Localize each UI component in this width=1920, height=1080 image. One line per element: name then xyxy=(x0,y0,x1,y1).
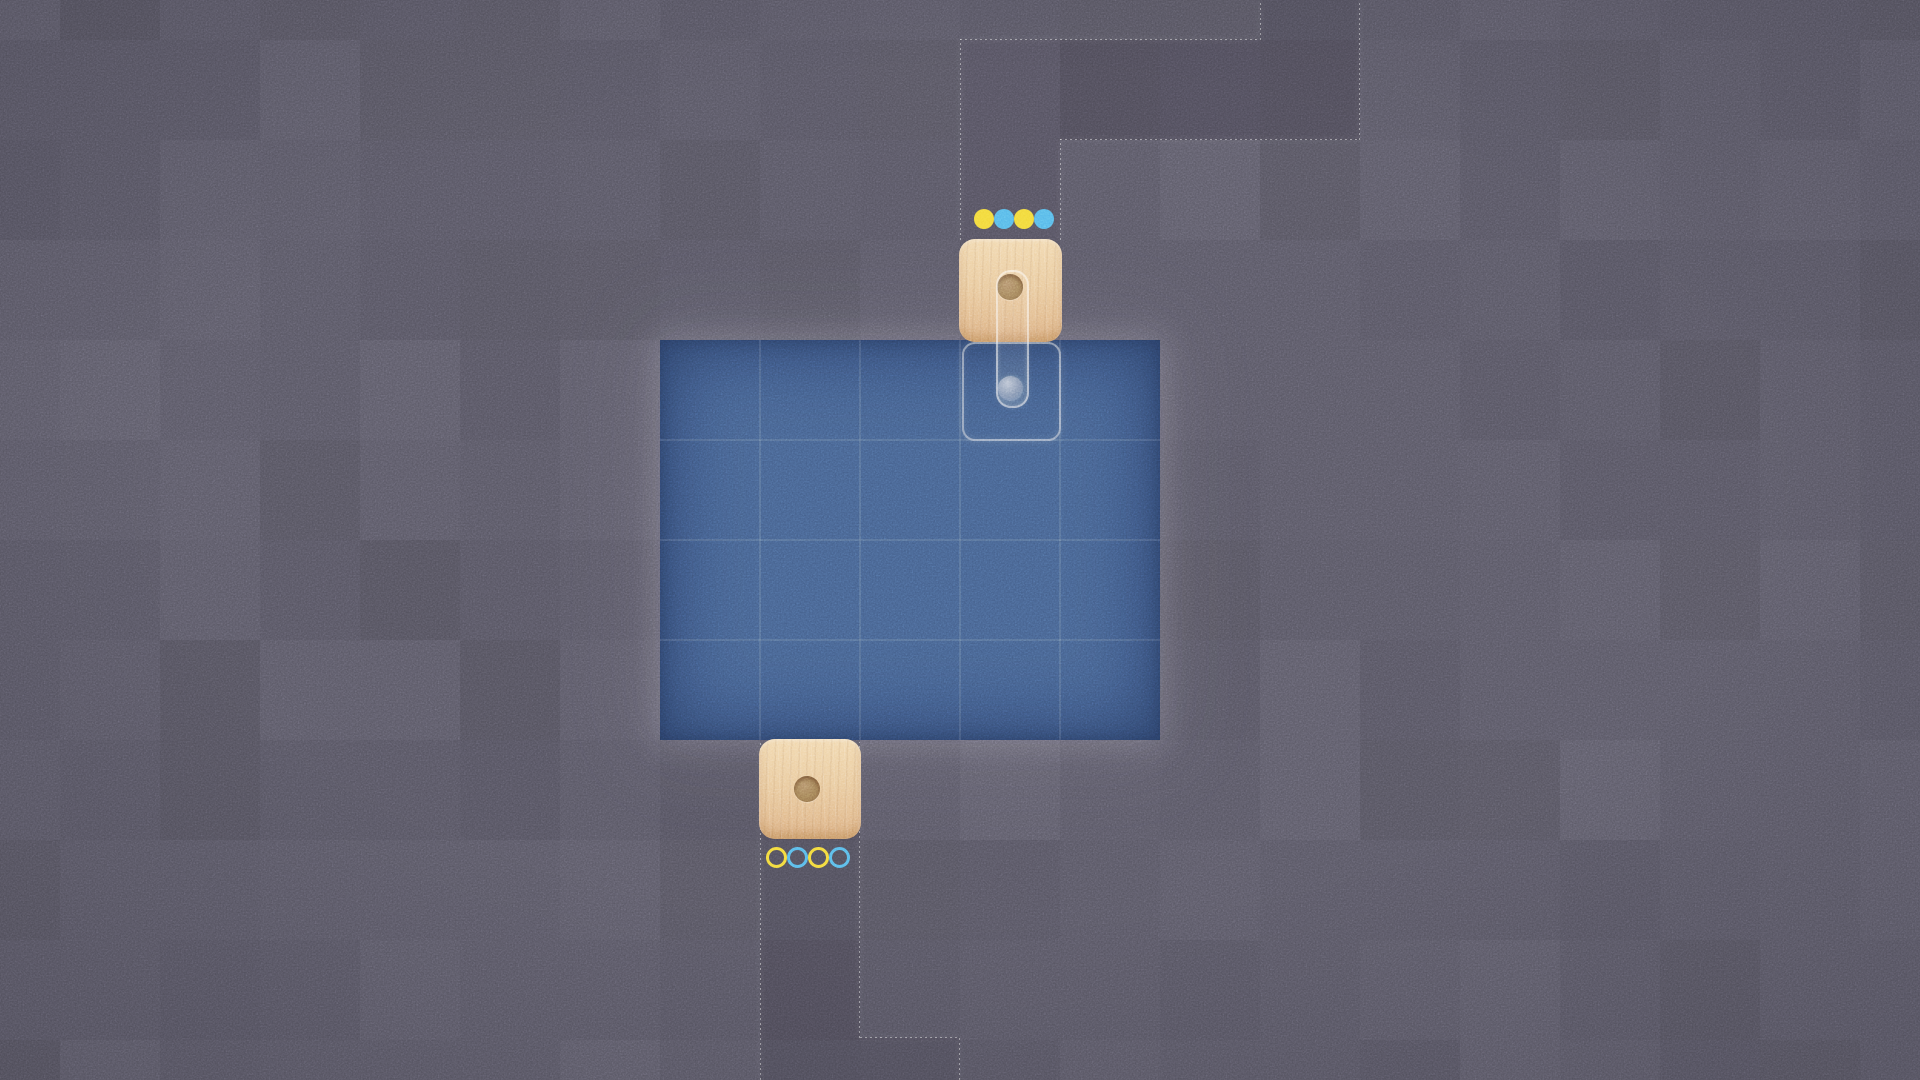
background-tile xyxy=(1160,940,1260,1040)
path-border xyxy=(959,1037,960,1080)
background-tile xyxy=(360,140,460,240)
path-border xyxy=(960,39,1260,40)
background-tile xyxy=(1360,1040,1460,1080)
background-tile xyxy=(1760,540,1860,640)
background-tile xyxy=(0,0,60,40)
queue-dot-yellow xyxy=(974,209,994,229)
background-tile xyxy=(1860,540,1920,640)
background-tile xyxy=(1360,0,1460,40)
background-tile xyxy=(1760,340,1860,440)
background-tile xyxy=(560,240,660,340)
background-tile xyxy=(560,840,660,940)
background-tile xyxy=(1360,640,1460,740)
background-tile xyxy=(860,840,960,940)
background-tile xyxy=(1560,740,1660,840)
background-tile xyxy=(260,0,360,40)
background-tile xyxy=(560,540,660,640)
background-tile xyxy=(260,940,360,1040)
background-tile xyxy=(960,740,1060,840)
background-tile xyxy=(1160,640,1260,740)
background-tile xyxy=(560,40,660,140)
background-tile xyxy=(1860,40,1920,140)
background-tile xyxy=(1860,0,1920,40)
background-tile xyxy=(460,240,560,340)
background-tile xyxy=(1160,440,1260,540)
background-tile xyxy=(160,140,260,240)
background-tile xyxy=(460,0,560,40)
queue-dot-blue xyxy=(994,209,1014,229)
background-tile xyxy=(1160,0,1260,40)
background-tile xyxy=(1760,0,1860,40)
block-hole xyxy=(794,776,820,802)
water-pool xyxy=(660,340,1160,740)
background-tile xyxy=(1560,40,1660,140)
background-tile xyxy=(0,140,60,240)
background-tile xyxy=(560,1040,660,1080)
background-tile xyxy=(560,740,660,840)
path-bottom-exit xyxy=(760,1038,960,1080)
path-top-entry-corridor xyxy=(1260,0,1360,40)
path-border xyxy=(1060,139,1061,240)
background-tile xyxy=(1160,140,1260,240)
background-tile xyxy=(1360,140,1460,240)
background-tile xyxy=(1560,340,1660,440)
background-tile xyxy=(460,340,560,440)
slot-ring-yellow xyxy=(808,847,829,868)
background-tile xyxy=(360,640,460,740)
slot-ring-blue xyxy=(787,847,808,868)
background-tile xyxy=(460,740,560,840)
background-tile xyxy=(1860,240,1920,340)
background-tile xyxy=(0,740,60,840)
background-tile xyxy=(1460,940,1560,1040)
background-tile xyxy=(960,840,1060,940)
background-tile xyxy=(0,840,60,940)
background-tile xyxy=(1260,740,1360,840)
tube-ball xyxy=(998,376,1023,401)
background-tile xyxy=(60,640,160,740)
background-tile xyxy=(1760,140,1860,240)
background-tile xyxy=(160,0,260,40)
water-grid-line xyxy=(660,639,1160,641)
path-border xyxy=(1060,139,1360,140)
background-tile xyxy=(360,540,460,640)
background-tile xyxy=(560,640,660,740)
background-tile xyxy=(1860,740,1920,840)
background-tile xyxy=(60,340,160,440)
background-tile xyxy=(1460,0,1560,40)
background-tile xyxy=(660,940,760,1040)
background-tile xyxy=(560,0,660,40)
game-stage xyxy=(0,0,1920,1080)
background-tile xyxy=(160,440,260,540)
background-tile xyxy=(460,640,560,740)
background-tile xyxy=(660,140,760,240)
background-tile xyxy=(1360,240,1460,340)
slot-rings-bottom xyxy=(766,847,850,868)
background-tile xyxy=(0,1040,60,1080)
path-border xyxy=(1359,0,1360,140)
background-tile xyxy=(1660,540,1760,640)
background-tile xyxy=(1860,640,1920,740)
background-tile xyxy=(660,240,760,340)
background-tile xyxy=(1460,40,1560,140)
background-tile xyxy=(1160,540,1260,640)
background-tile xyxy=(1460,240,1560,340)
background-tile xyxy=(160,740,260,840)
background-tile xyxy=(360,0,460,40)
background-tile xyxy=(260,440,360,540)
path-top-room xyxy=(960,40,1360,140)
background-tile xyxy=(1560,840,1660,940)
background-tile xyxy=(360,940,460,1040)
background-tile xyxy=(0,340,60,440)
background-tile xyxy=(260,640,360,740)
background-tile xyxy=(660,840,760,940)
background-tile xyxy=(1560,540,1660,640)
background-tile xyxy=(460,140,560,240)
queue-dot-blue xyxy=(1034,209,1054,229)
background-tile xyxy=(1660,940,1760,1040)
background-tile xyxy=(1160,840,1260,940)
background-tile xyxy=(1560,140,1660,240)
background-tile xyxy=(160,640,260,740)
background-tile xyxy=(1360,740,1460,840)
water-grid-line xyxy=(660,539,1160,541)
background-tile xyxy=(760,40,860,140)
background-tile xyxy=(1060,1040,1160,1080)
background-tile xyxy=(860,40,960,140)
background-tile xyxy=(660,0,760,40)
background-tile xyxy=(460,40,560,140)
background-tile xyxy=(660,740,760,840)
background-tile xyxy=(760,240,860,340)
background-tile xyxy=(1460,1040,1560,1080)
background-tile xyxy=(60,1040,160,1080)
background-tile xyxy=(1560,240,1660,340)
background-tile xyxy=(1760,1040,1860,1080)
background-tile xyxy=(360,340,460,440)
background-tile xyxy=(560,440,660,540)
background-tile xyxy=(1260,640,1360,740)
background-tile xyxy=(360,40,460,140)
background-tile xyxy=(960,0,1060,40)
background-tile xyxy=(160,240,260,340)
path-border xyxy=(1260,0,1261,40)
slot-ring-yellow xyxy=(766,847,787,868)
slot-ring-blue xyxy=(829,847,850,868)
background-tile xyxy=(1460,740,1560,840)
path-border xyxy=(860,1037,960,1038)
background-tile xyxy=(1060,0,1160,40)
background-tile xyxy=(360,240,460,340)
background-tile xyxy=(60,0,160,40)
background-tile xyxy=(860,940,960,1040)
background-tile xyxy=(360,440,460,540)
background-tile xyxy=(1860,840,1920,940)
background-tile xyxy=(1760,440,1860,540)
background-tile xyxy=(160,940,260,1040)
background-tile xyxy=(1660,340,1760,440)
receiver-block-bottom[interactable] xyxy=(759,739,861,839)
background-tile xyxy=(1660,1040,1760,1080)
background-tile xyxy=(560,340,660,440)
water-grid-line xyxy=(660,439,1160,441)
background-tile xyxy=(1260,140,1360,240)
queue-dot-yellow xyxy=(1014,209,1034,229)
background-tile xyxy=(960,1040,1060,1080)
path-border xyxy=(960,39,961,240)
background-tile xyxy=(1760,40,1860,140)
background-tile xyxy=(860,140,960,240)
background-tile xyxy=(1560,1040,1660,1080)
background-tile xyxy=(1460,440,1560,540)
background-tile xyxy=(160,540,260,640)
queue-dots-top xyxy=(974,209,1054,229)
background-tile xyxy=(1460,140,1560,240)
background-tile xyxy=(1660,0,1760,40)
background-tile xyxy=(260,40,360,140)
background-tile xyxy=(1360,940,1460,1040)
